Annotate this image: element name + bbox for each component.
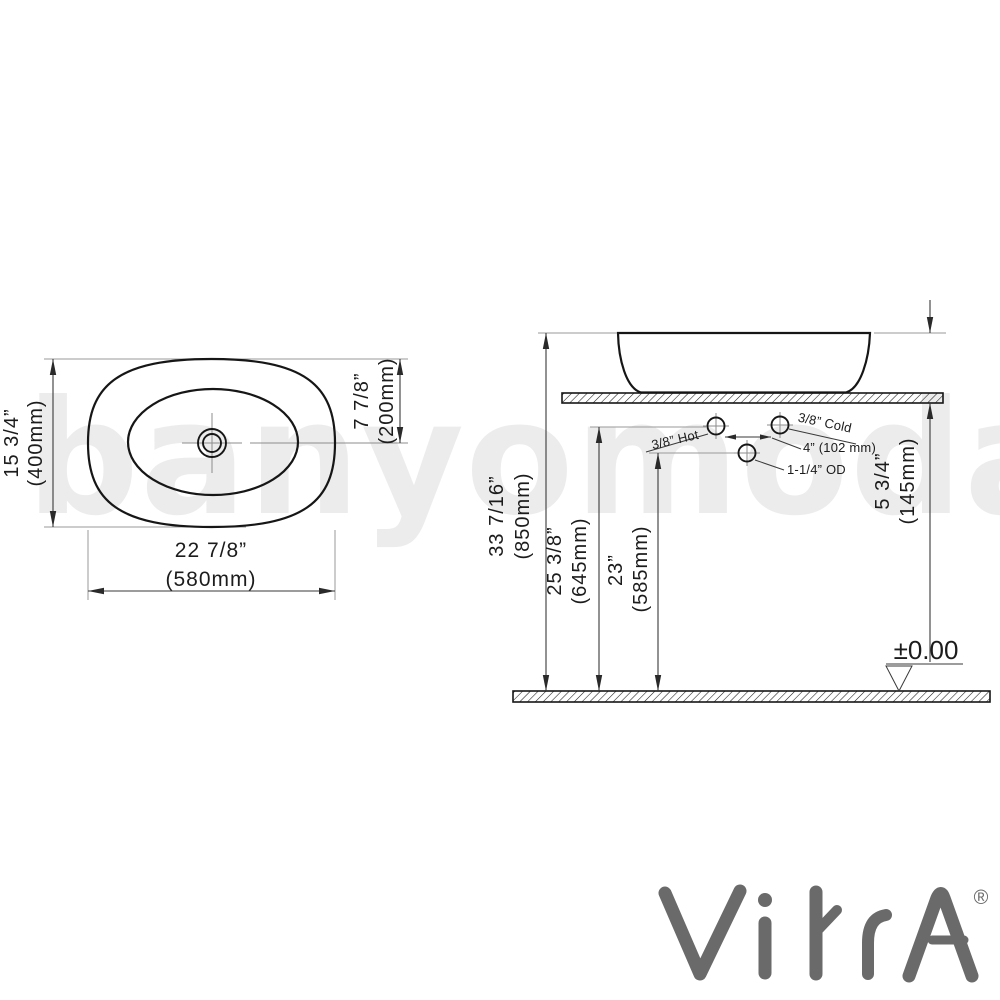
technical-drawing-sheet: banyomoda <box>0 0 1000 1000</box>
datum-label: ±0.00 <box>894 635 959 665</box>
waste-height-mm-label: (585mm) <box>630 525 652 612</box>
basin-height-inches-label: 5 3/4” <box>872 452 894 509</box>
logo-letter-v <box>665 891 740 974</box>
datum-marker: ±0.00 <box>886 635 963 691</box>
plan-depth-inches-label: 15 3/4” <box>1 408 23 477</box>
supply-height-inches-label: 25 3/8” <box>544 526 566 595</box>
rim-height-inches-label: 33 7/16” <box>486 475 508 556</box>
plan-drain-offset-mm-label: (200mm) <box>376 357 398 444</box>
plan-depth-mm-label: (400mm) <box>25 399 47 486</box>
cold-supply-label: 3/8” Cold <box>797 410 853 436</box>
waste-outlet-label: 1-1/4” OD <box>787 462 846 477</box>
basin-profile <box>618 333 870 393</box>
cold-supply-connection <box>767 412 793 438</box>
logo-letter-i-dot <box>758 893 772 907</box>
countertop-slab <box>562 393 943 403</box>
waste-outlet-connection <box>734 440 760 466</box>
logo-letter-r <box>868 915 886 974</box>
logo-letter-a <box>909 894 972 977</box>
waste-leader-line <box>755 460 784 470</box>
waste-height-inches-label: 23” <box>605 554 627 586</box>
basin-height-mm-label: (145mm) <box>897 437 919 524</box>
vitra-logo: ® <box>665 887 989 976</box>
drawing-svg: 15 3/4” (400mm) 7 7/8” (200mm) 22 7/8” (… <box>0 0 1000 1000</box>
supply-spacing-label: 4” (102 mm) <box>803 440 876 455</box>
datum-triangle-icon <box>886 666 912 691</box>
hot-supply-label: 3/8” Hot <box>650 427 700 452</box>
plan-view: 15 3/4” (400mm) 7 7/8” (200mm) 22 7/8” (… <box>1 357 408 600</box>
registered-trademark-icon: ® <box>974 887 989 909</box>
basin-inner-bowl <box>128 389 298 495</box>
plan-width-mm-label: (580mm) <box>165 568 256 591</box>
supply-height-mm-label: (645mm) <box>569 517 591 604</box>
plan-width-inches-label: 22 7/8” <box>175 539 247 562</box>
hot-supply-connection <box>703 413 729 439</box>
spacing-leader-line <box>772 438 801 449</box>
floor-slab <box>513 691 990 702</box>
plan-drain-offset-inches-label: 7 7/8” <box>351 372 373 429</box>
rim-height-mm-label: (850mm) <box>512 472 534 559</box>
